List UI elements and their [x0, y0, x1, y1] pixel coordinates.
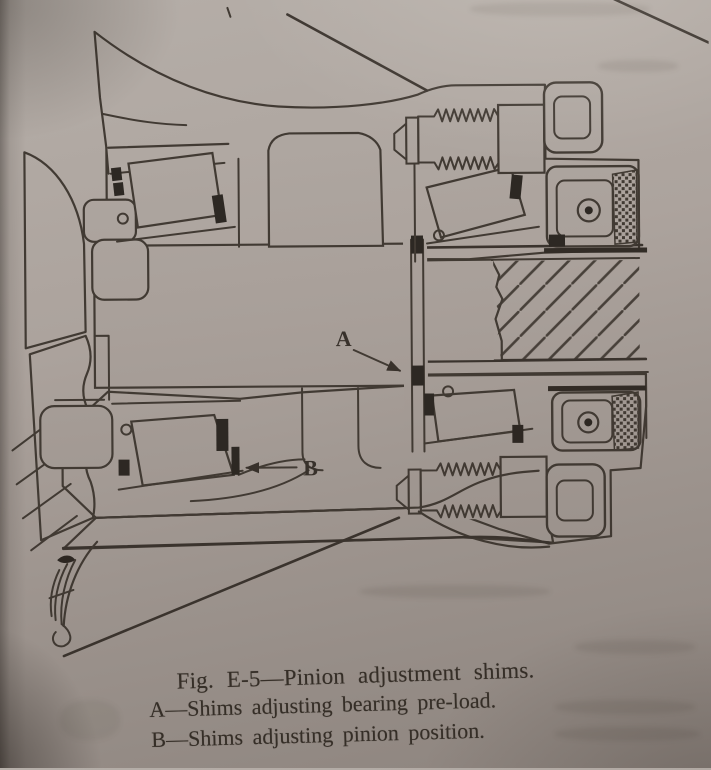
shim-a-target [412, 366, 424, 386]
outer-bearing-lower [424, 386, 532, 444]
oil-seal-upper [543, 166, 647, 251]
callout-b: B [246, 455, 318, 480]
gear-tooth-flourish [49, 555, 76, 646]
flange-nut-upper [544, 82, 602, 152]
callout-a-label: A [336, 326, 352, 351]
page-bleedthrough [360, 585, 550, 598]
section-leader-line [63, 518, 400, 656]
scanned-book-page: A B Fig. E-5—Pinion adjustment shims. A—… [0, 0, 711, 768]
top-leader-lines [227, 0, 709, 92]
page-bleedthrough [555, 727, 700, 741]
page-bleedthrough [470, 2, 650, 16]
inner-bearing-lower [112, 401, 243, 490]
page-bleedthrough [575, 640, 695, 654]
page-bleedthrough [60, 700, 120, 740]
differential-case-section [10, 152, 94, 551]
shim-b-target [231, 447, 239, 475]
flange-nut-lower [547, 464, 606, 536]
callout-b-label: B [303, 455, 318, 480]
page-bleedthrough [598, 60, 678, 72]
page-bleedthrough [555, 700, 695, 714]
flange-bolt-lower [397, 456, 606, 548]
oil-seal-lower [548, 388, 646, 451]
shim-a-upper [411, 236, 423, 254]
preload-shim-stack [403, 235, 429, 453]
